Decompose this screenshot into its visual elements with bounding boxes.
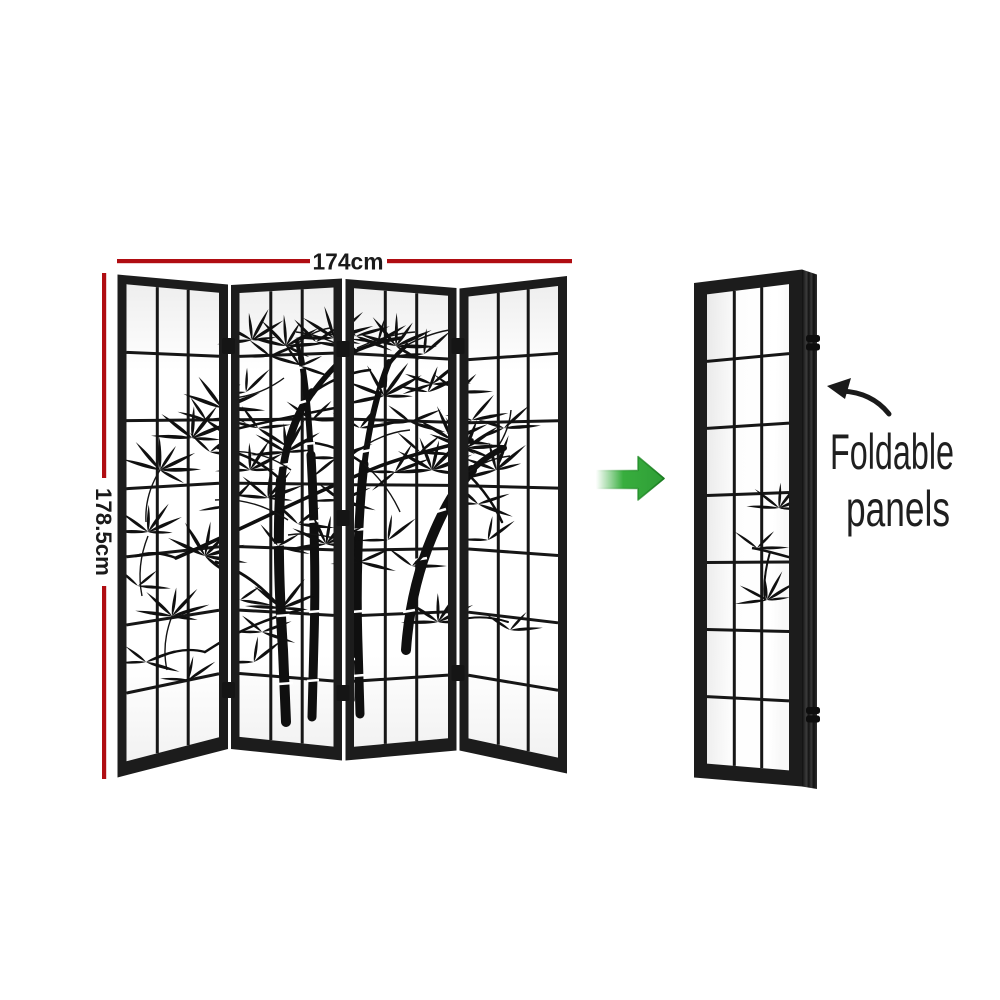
svg-text:panels: panels xyxy=(846,481,950,537)
svg-text:174cm: 174cm xyxy=(313,249,384,275)
svg-text:Foldable: Foldable xyxy=(830,424,954,480)
svg-text:178.5cm: 178.5cm xyxy=(91,488,116,576)
